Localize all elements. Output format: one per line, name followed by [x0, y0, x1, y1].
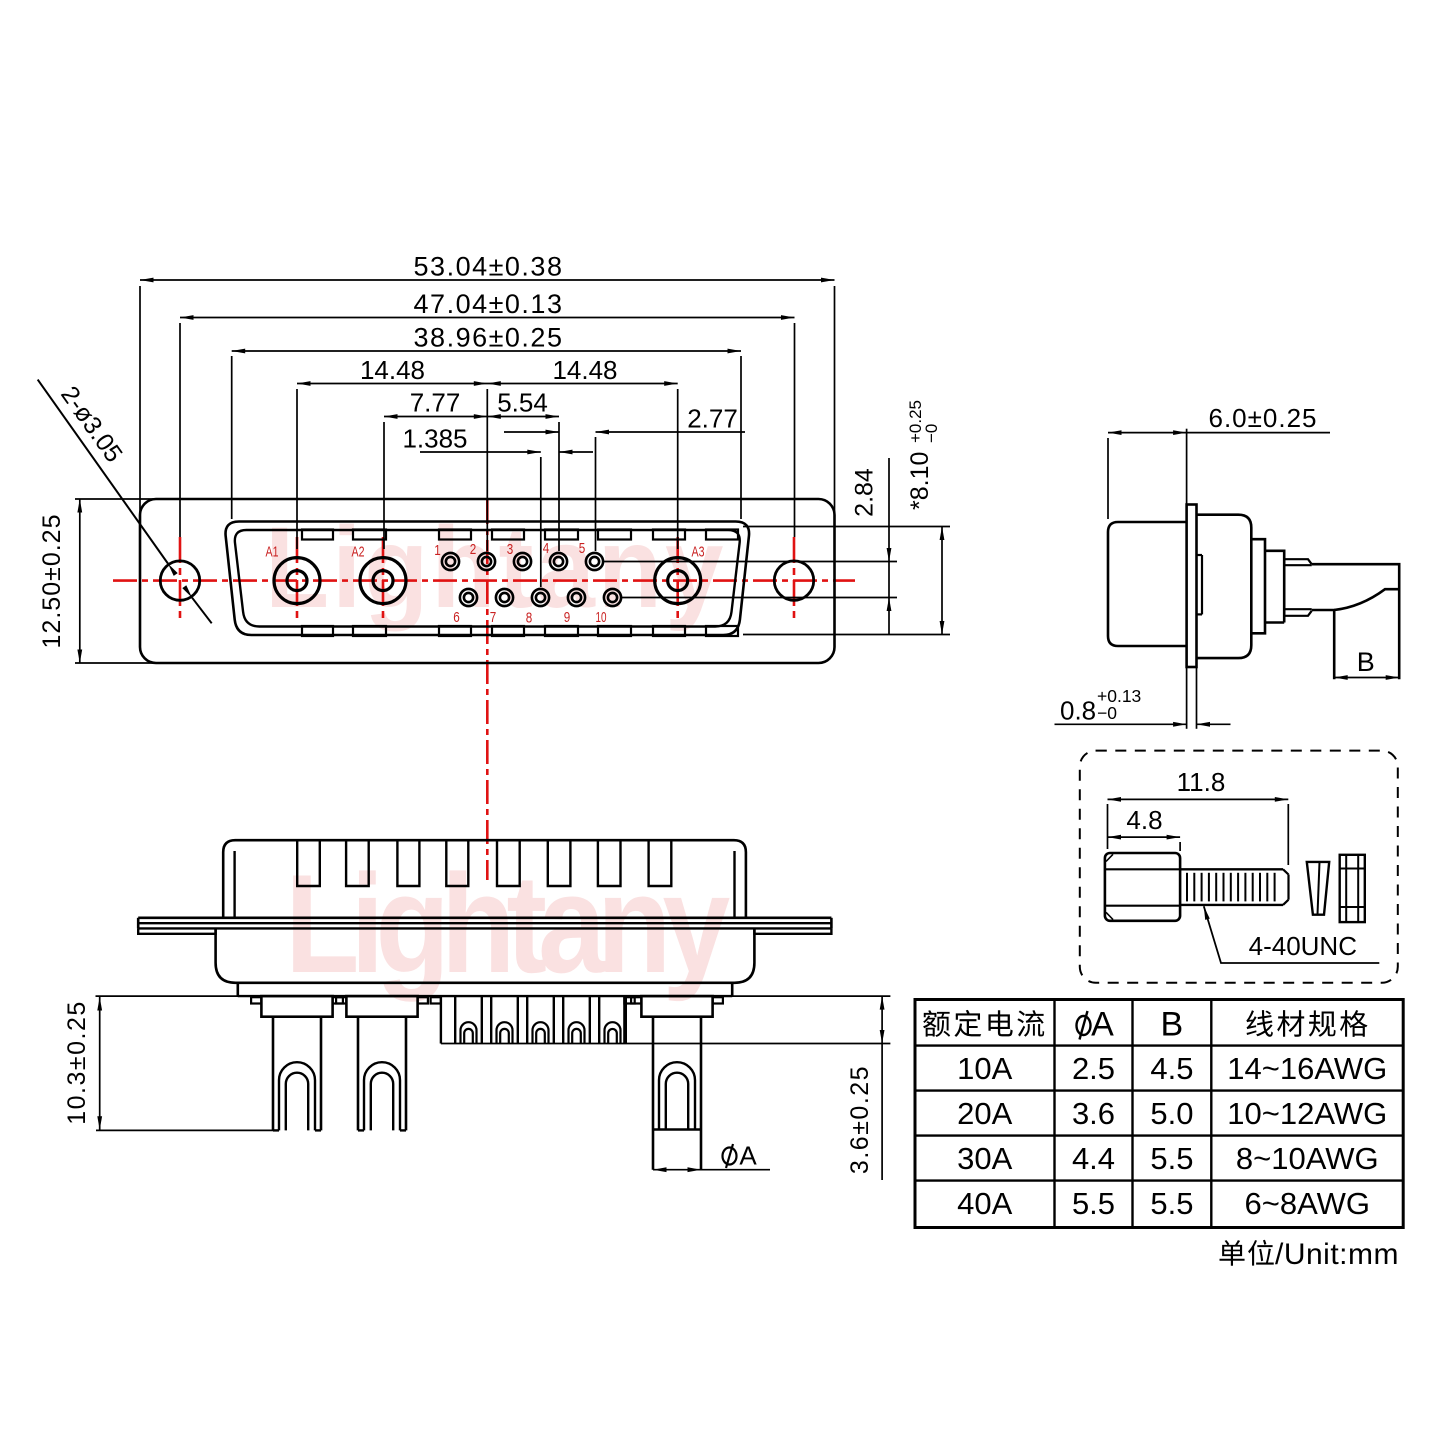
svg-text:A3: A3: [692, 544, 705, 561]
svg-text:*8.10: *8.10: [906, 452, 934, 510]
svg-text:2.77: 2.77: [687, 404, 738, 434]
svg-text:8: 8: [526, 610, 533, 627]
svg-text:14~16AWG: 14~16AWG: [1227, 1051, 1387, 1086]
svg-text:40A: 40A: [957, 1186, 1012, 1221]
svg-text:2: 2: [470, 541, 477, 558]
svg-text:30A: 30A: [957, 1141, 1012, 1176]
svg-text:9: 9: [564, 609, 571, 626]
svg-text:3: 3: [507, 541, 514, 558]
svg-text:14.48: 14.48: [552, 355, 617, 385]
svg-text:3.6±0.25: 3.6±0.25: [846, 1065, 874, 1174]
svg-text:10: 10: [596, 609, 607, 626]
svg-text:10A: 10A: [957, 1051, 1012, 1086]
svg-text:2.5: 2.5: [1072, 1051, 1115, 1086]
svg-text:4.5: 4.5: [1150, 1051, 1193, 1086]
svg-text:53.04±0.38: 53.04±0.38: [414, 252, 564, 282]
svg-text:38.96±0.25: 38.96±0.25: [414, 323, 564, 353]
svg-text:2.84: 2.84: [851, 468, 879, 517]
svg-text:−0: −0: [1097, 703, 1117, 723]
svg-text:4.4: 4.4: [1072, 1141, 1115, 1176]
svg-text:5.5: 5.5: [1072, 1186, 1115, 1221]
svg-text:3.6: 3.6: [1072, 1096, 1115, 1131]
svg-text:A1: A1: [266, 544, 279, 561]
svg-text:4: 4: [543, 540, 550, 557]
svg-text:0.8: 0.8: [1060, 696, 1096, 726]
svg-text:A2: A2: [352, 544, 365, 561]
svg-text:14.48: 14.48: [360, 355, 425, 385]
svg-text:B: B: [1357, 647, 1375, 677]
svg-text:10~12AWG: 10~12AWG: [1227, 1096, 1387, 1131]
svg-text:6~8AWG: 6~8AWG: [1245, 1186, 1370, 1221]
svg-text:20A: 20A: [957, 1096, 1012, 1131]
svg-text:A: A: [1091, 1006, 1114, 1044]
svg-text:−0: −0: [922, 424, 941, 443]
svg-text:7.77: 7.77: [410, 388, 461, 418]
svg-text:/Unit:mm: /Unit:mm: [1275, 1238, 1399, 1271]
svg-text:5.54: 5.54: [497, 388, 548, 418]
svg-text:8~10AWG: 8~10AWG: [1236, 1141, 1379, 1176]
svg-text:7: 7: [490, 609, 497, 626]
svg-text:A: A: [739, 1141, 757, 1171]
svg-text:5.0: 5.0: [1150, 1096, 1193, 1131]
svg-text:5: 5: [579, 540, 586, 557]
svg-text:47.04±0.13: 47.04±0.13: [414, 289, 564, 319]
svg-text:6: 6: [453, 609, 460, 626]
svg-text:10.3±0.25: 10.3±0.25: [63, 1000, 91, 1125]
svg-text:4.8: 4.8: [1126, 805, 1162, 835]
svg-text:1.385: 1.385: [402, 424, 467, 454]
svg-text:5.5: 5.5: [1150, 1186, 1193, 1221]
svg-text:5.5: 5.5: [1150, 1141, 1193, 1176]
svg-text:B: B: [1161, 1006, 1184, 1044]
svg-text:6.0±0.25: 6.0±0.25: [1208, 403, 1317, 433]
svg-text:12.50±0.25: 12.50±0.25: [38, 514, 66, 649]
svg-text:1: 1: [434, 542, 441, 559]
svg-text:4-40UNC: 4-40UNC: [1249, 931, 1357, 961]
svg-text:11.8: 11.8: [1177, 767, 1226, 797]
